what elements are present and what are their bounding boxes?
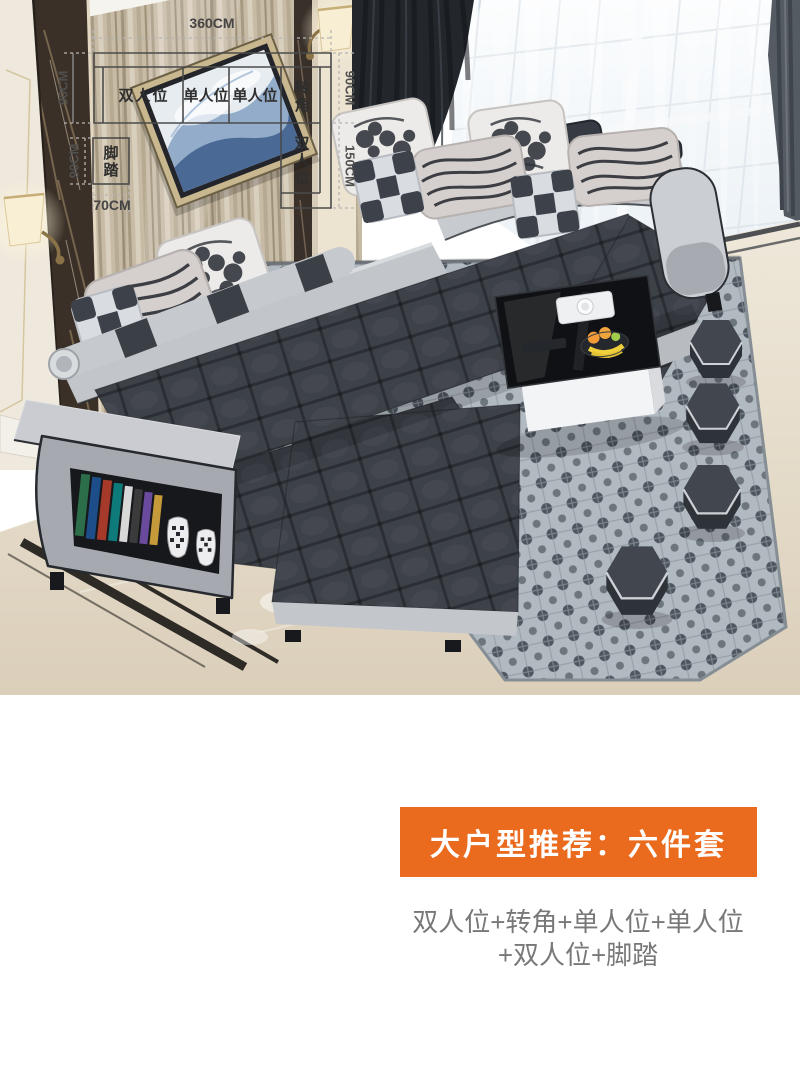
seat-single: 单人位 bbox=[183, 89, 228, 104]
seat-wing-double: 双人位 bbox=[294, 136, 309, 187]
seat-corner: 转角 bbox=[294, 80, 309, 114]
product-detail-page: 360CM 90CM 90CM 150CM 90CM 70CM 双人位 单人位 … bbox=[0, 0, 800, 1078]
dim-wing-length: 150CM bbox=[344, 145, 357, 187]
floor-plan-diagram: 360CM 90CM 90CM 150CM 90CM 70CM 双人位 单人位 … bbox=[0, 0, 400, 240]
combo-line-2: +双人位+脚踏 bbox=[398, 939, 758, 972]
dim-depth-right: 90CM bbox=[344, 71, 357, 106]
seat-double: 双人位 bbox=[118, 89, 169, 104]
dim-depth-left: 90CM bbox=[57, 71, 70, 106]
floor-plan-lines bbox=[0, 0, 400, 240]
seat-single-2: 单人位 bbox=[232, 89, 277, 104]
dim-total-width: 360CM bbox=[189, 16, 234, 30]
combo-description: 双人位+转角+单人位+单人位 +双人位+脚踏 bbox=[398, 906, 758, 972]
promo-banner: 大户型推荐：六件套 bbox=[400, 807, 757, 877]
dim-footstool-width: 70CM bbox=[93, 198, 130, 212]
seat-footstool: 脚踏 bbox=[103, 145, 118, 179]
combo-line-1: 双人位+转角+单人位+单人位 bbox=[398, 906, 758, 939]
dim-footstool-depth: 90CM bbox=[68, 144, 81, 179]
